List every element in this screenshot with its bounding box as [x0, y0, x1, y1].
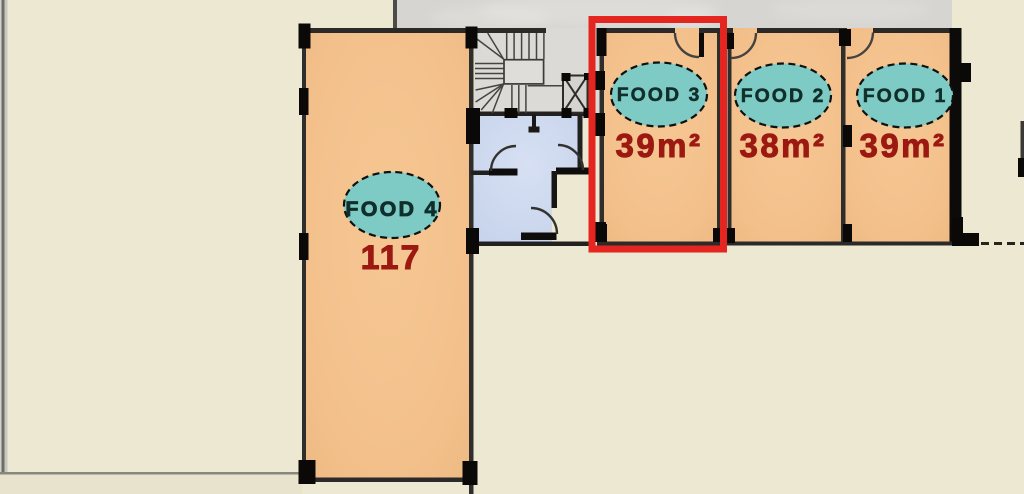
svg-text:FOOD 4: FOOD 4 [345, 197, 438, 221]
svg-text:FOOD 2: FOOD 2 [741, 85, 826, 107]
svg-text:39m²: 39m² [615, 127, 702, 164]
svg-text:FOOD 3: FOOD 3 [617, 84, 702, 106]
svg-text:38m²: 38m² [739, 127, 826, 164]
svg-text:39m²: 39m² [859, 127, 946, 164]
svg-text:FOOD 1: FOOD 1 [863, 85, 948, 107]
svg-text:117: 117 [361, 239, 422, 277]
